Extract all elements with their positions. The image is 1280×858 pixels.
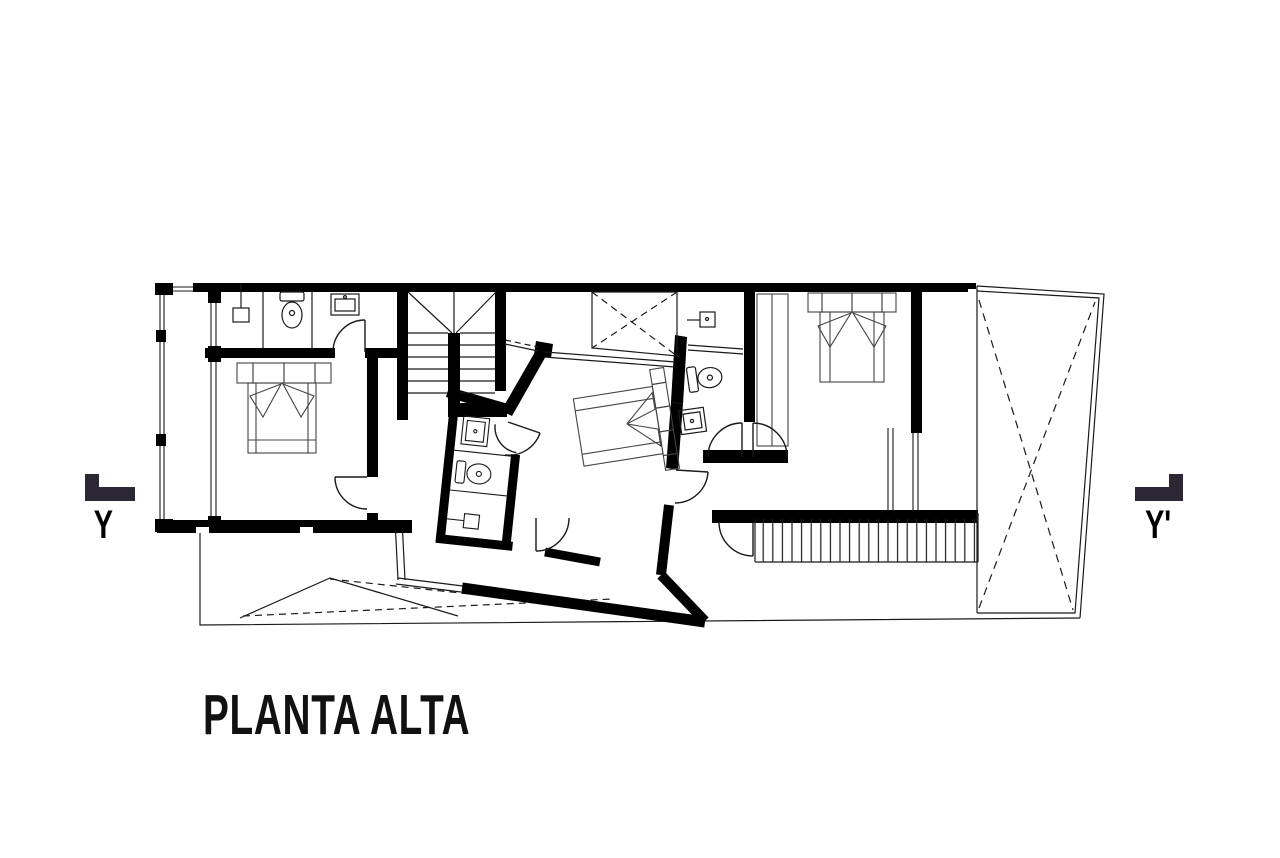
shower-icon [687,312,715,327]
left-balcony [155,283,221,533]
wardrobe-icon [757,294,788,446]
plan-title: PLANTA ALTA [203,682,470,748]
sink-icon [461,416,490,447]
sink-icon [331,294,359,315]
toilet-icon [280,292,304,328]
window-glazing-icon [888,428,918,511]
bed-icon [571,367,680,482]
louver-deck-icon [719,513,978,562]
section-marker-left-label: Y [94,503,113,548]
void-x-icon [592,292,677,356]
section-marker-right-label: Y' [1145,503,1171,548]
toilet-icon [686,363,723,392]
bathroom-middle [678,312,743,457]
walls [157,283,978,533]
floor-plan-page: Y Y' PLANTA ALTA [0,0,1280,858]
bed-icon [237,363,331,453]
bed-icon [808,293,896,382]
door-swing-icon [675,470,708,503]
bedroom-left [237,363,367,509]
door-swing-icon [719,522,753,556]
stair-icon [408,292,538,393]
door-swing-icon [333,320,365,352]
toilet-icon [455,461,492,487]
floor-plan-drawing [0,0,1280,858]
section-marker-left-symbol [85,474,135,501]
bedroom-right [753,293,918,511]
section-marker-right-symbol [1135,474,1183,501]
door-swing-icon [492,424,519,452]
door-swing-icon [335,477,367,509]
shower-icon [446,512,479,529]
bathroom-top-left [233,283,365,352]
void-x-icon [977,286,1104,618]
door-swing-icon [536,518,569,551]
sink-icon [678,407,706,434]
